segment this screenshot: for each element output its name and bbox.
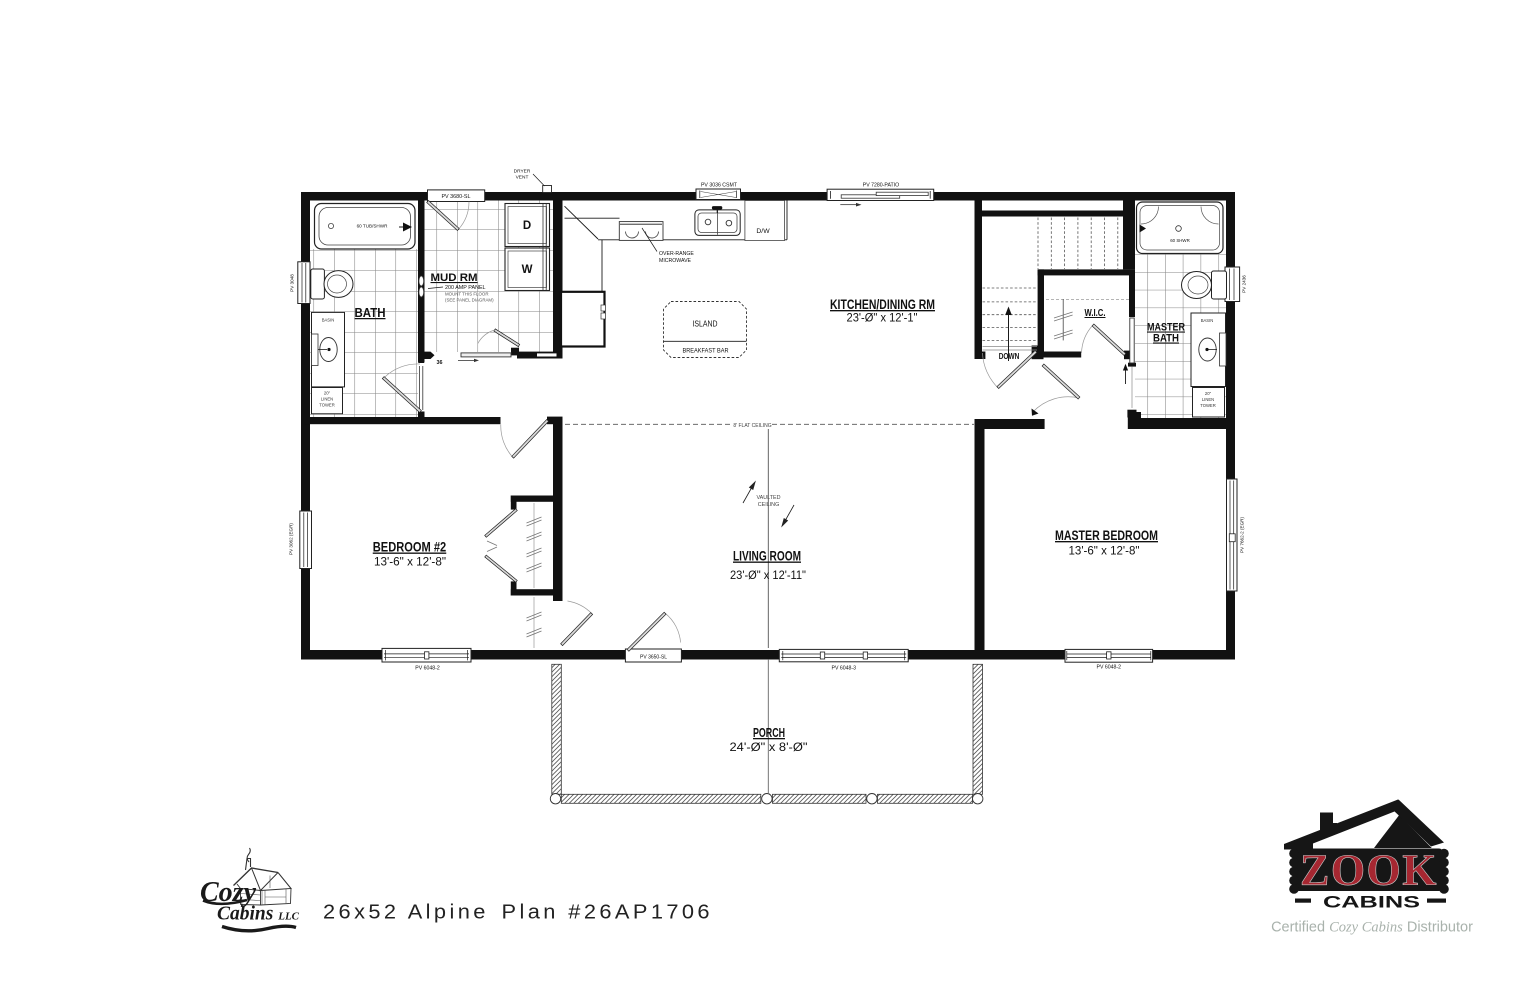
svg-text:LINEN: LINEN	[321, 397, 333, 402]
svg-text:PV 3062 (EGR): PV 3062 (EGR)	[289, 523, 294, 555]
svg-text:PORCH: PORCH	[753, 725, 785, 740]
svg-text:8' FLAT CEILING: 8' FLAT CEILING	[733, 423, 771, 429]
svg-text:20": 20"	[324, 391, 331, 396]
svg-text:60 TUB/SHWR: 60 TUB/SHWR	[357, 224, 388, 229]
svg-text:23'-Ø" x 12'-11": 23'-Ø" x 12'-11"	[730, 568, 806, 582]
svg-text:PV 7662-2 (EGR): PV 7662-2 (EGR)	[1240, 517, 1245, 553]
svg-text:Certified Cozy Cabins Distribu: Certified Cozy Cabins Distributor	[1271, 920, 1473, 936]
svg-text:24'-Ø" x 8'-Ø": 24'-Ø" x 8'-Ø"	[730, 740, 808, 754]
svg-text:PV 3036 CSMT: PV 3036 CSMT	[701, 183, 738, 189]
svg-text:13'-6" x 12'-8": 13'-6" x 12'-8"	[1069, 544, 1140, 558]
svg-text:36: 36	[437, 360, 443, 366]
svg-text:20": 20"	[1205, 391, 1212, 396]
svg-text:PV 3680-SL: PV 3680-SL	[441, 194, 470, 200]
svg-text:LIVING ROOM: LIVING ROOM	[733, 549, 801, 564]
svg-text:PV 3048: PV 3048	[290, 274, 295, 292]
svg-text:PV 6048-2: PV 6048-2	[1097, 665, 1122, 671]
svg-text:PV 7280-PATIO: PV 7280-PATIO	[863, 183, 899, 189]
svg-text:BATH: BATH	[355, 306, 386, 320]
svg-text:ZOOK: ZOOK	[1300, 846, 1438, 895]
svg-text:60 SHWR: 60 SHWR	[1170, 238, 1190, 243]
svg-text:BASIN: BASIN	[1201, 318, 1214, 323]
svg-text:(SEE PANEL DIAGRAM): (SEE PANEL DIAGRAM)	[445, 298, 494, 303]
svg-text:BATH: BATH	[1153, 333, 1179, 345]
svg-text:PV 6048-3: PV 6048-3	[832, 666, 857, 672]
svg-text:ISLAND: ISLAND	[693, 319, 718, 329]
svg-text:PV 3650-SL: PV 3650-SL	[640, 655, 667, 661]
svg-text:23'-Ø" x 12'-1": 23'-Ø" x 12'-1"	[847, 311, 918, 325]
svg-text:W: W	[522, 264, 533, 276]
svg-text:26x52 AlpinePlan #26AP1706: 26x52 AlpinePlan #26AP1706	[323, 901, 713, 924]
svg-text:200 AMP PANEL: 200 AMP PANEL	[445, 285, 486, 291]
svg-text:PV 6048-2: PV 6048-2	[415, 666, 440, 672]
svg-text:TOWER: TOWER	[319, 403, 335, 408]
svg-text:DRYER: DRYER	[514, 169, 531, 175]
svg-text:PV 2436: PV 2436	[1242, 275, 1247, 293]
svg-text:13'-6" x 12'-8": 13'-6" x 12'-8"	[374, 555, 446, 569]
svg-text:CABINS: CABINS	[1323, 893, 1420, 912]
svg-text:OVER-RANGE: OVER-RANGE	[659, 251, 694, 257]
svg-text:TOWER: TOWER	[1200, 403, 1216, 408]
svg-text:CEILING: CEILING	[758, 502, 780, 508]
svg-text:LINEN: LINEN	[1202, 397, 1214, 402]
svg-text:BREAKFAST BAR: BREAKFAST BAR	[683, 348, 729, 355]
svg-text:MASTER BEDROOM: MASTER BEDROOM	[1055, 528, 1158, 543]
svg-text:MICROWAVE: MICROWAVE	[659, 258, 692, 264]
svg-text:MOUNT THIS FLOOR: MOUNT THIS FLOOR	[445, 292, 489, 297]
svg-text:MUD RM: MUD RM	[431, 272, 478, 284]
svg-text:W.I.C.: W.I.C.	[1085, 308, 1106, 319]
svg-text:VAULTED: VAULTED	[756, 495, 780, 501]
svg-text:DOWN: DOWN	[999, 352, 1020, 361]
svg-text:BASIN: BASIN	[322, 318, 335, 323]
svg-text:BEDROOM #2: BEDROOM #2	[373, 540, 447, 555]
svg-text:D: D	[523, 220, 531, 232]
svg-text:D/W: D/W	[756, 228, 770, 235]
svg-text:VENT: VENT	[516, 175, 529, 181]
